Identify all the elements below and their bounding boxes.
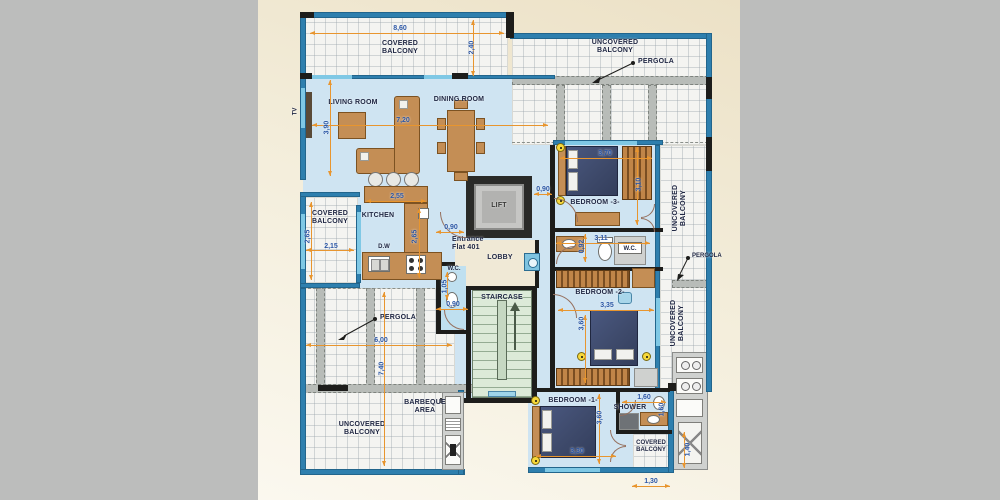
wall (300, 469, 465, 475)
dim-6-00: 6,00 (366, 337, 396, 344)
window (301, 88, 305, 128)
wall (300, 288, 306, 475)
pergola-beam (648, 85, 657, 145)
bed-headboard (532, 406, 540, 458)
balcony-edge-dashed (303, 288, 455, 289)
wall (300, 12, 512, 18)
bed-headboard (558, 146, 566, 196)
bar-stool (386, 172, 401, 187)
kitchen-sink-basin (371, 259, 380, 271)
dining-chair (437, 142, 446, 154)
wall (300, 283, 360, 288)
dim-3-11: 3,11 (586, 235, 616, 242)
wall (300, 192, 360, 197)
bedroom1-label: BEDROOM -1- (548, 397, 598, 405)
window (656, 298, 660, 346)
dim-3-10: 3,10 (636, 173, 643, 197)
bedroom2-label: BEDROOM -2- (575, 289, 625, 297)
lift-label: LIFT (479, 202, 519, 210)
staircase-landing (488, 391, 516, 397)
dim-1-60-shower-h: 1,60 (630, 394, 658, 401)
barbeque-grill (445, 418, 461, 431)
tv-label: TV (293, 103, 300, 119)
stove-burner (409, 266, 414, 271)
dresser-bedroom3 (575, 212, 620, 226)
window (312, 75, 352, 79)
bed-pillow (542, 433, 552, 452)
toilet (598, 242, 612, 261)
pergola-beam (316, 288, 325, 388)
wall-black (550, 228, 555, 270)
dim-1-05: 1,05 (442, 275, 449, 299)
burner (681, 382, 690, 391)
window (545, 468, 600, 472)
dim-line (632, 486, 670, 487)
bedroom3-label: BEDROOM -3- (570, 199, 620, 207)
sofa-pillow (399, 100, 408, 109)
dim-line (419, 208, 420, 278)
wall-black (300, 12, 314, 18)
dim-line (436, 232, 464, 233)
pergola-right-label: PERGOLA (692, 253, 736, 260)
dim-3-30: 3,30 (562, 448, 592, 455)
burner (692, 361, 701, 370)
dim-1-30: 1,30 (636, 478, 666, 485)
dim-line (536, 456, 616, 457)
dim-line (558, 310, 654, 311)
nightstand-lamp (531, 396, 540, 405)
dim-1-60-shower-v: 1,60 (659, 398, 666, 422)
wall-black (452, 73, 468, 79)
entrance-label: Entrance Flat 401 (452, 236, 492, 252)
dim-7-40: 7,40 (379, 357, 386, 381)
pergola-top-arrow (590, 60, 636, 86)
barbeque-label: BARBEQUE AREA (398, 399, 452, 415)
dim-2-65-balcony: 2,65 (305, 225, 312, 249)
dim-line (556, 243, 650, 244)
dim-line (436, 309, 468, 310)
window (424, 75, 454, 79)
dim-line (366, 201, 426, 202)
dim-line (310, 33, 504, 34)
wall-black (528, 388, 670, 392)
staircase-up-arrow-head (510, 302, 520, 311)
pergola-right-arrow (674, 256, 690, 282)
sofa-pillow (360, 152, 369, 161)
covered-balcony-bottomright-label: COVERED BALCONY (628, 440, 674, 454)
dining-chair (476, 142, 485, 154)
dim-line (312, 125, 548, 126)
dining-chair (437, 118, 446, 130)
dim-3-35: 3,35 (592, 302, 622, 309)
wall-black (318, 385, 348, 391)
dim-3-90: 3,90 (324, 116, 331, 140)
dim-1-40: 1,40 (685, 438, 692, 462)
barbeque-cabinet-handle (450, 444, 456, 456)
cabinet-bedroom2 (632, 268, 655, 288)
burner (692, 382, 701, 391)
dim-2-40: 2,40 (469, 36, 476, 60)
wall-black (436, 330, 470, 334)
dim-3-60-bed2: 3,60 (579, 312, 586, 336)
burner (681, 361, 690, 370)
floor-plan-canvas: LIFT Entrance Flat 401 LOBBY STAIRCASE W… (0, 0, 1000, 500)
bed-pillow (616, 349, 634, 360)
uncovered-balcony-right-upper-label: UNCOVERED BALCONY (672, 178, 688, 238)
dim-8-60: 8,60 (382, 25, 418, 32)
tv-unit (306, 92, 312, 138)
kitchen-label: KITCHEN (352, 212, 404, 220)
pergola-top-label: PERGOLA (638, 58, 684, 66)
dining-room-label: DINING ROOM (424, 96, 494, 104)
uncovered-balcony-top-label: UNCOVERED BALCONY (583, 39, 647, 55)
uncovered-balcony-right-lower-label: UNCOVERED BALCONY (670, 293, 686, 353)
wall-black (706, 77, 712, 99)
dining-table (447, 110, 475, 172)
dishwasher-label: D.W (372, 244, 396, 251)
dining-chair (476, 118, 485, 130)
living-room-label: LIVING ROOM (318, 99, 388, 107)
dining-chair (454, 172, 468, 181)
dim-0-92: 0,92 (579, 235, 586, 259)
dim-line (534, 194, 552, 195)
bed-pillow (594, 349, 612, 360)
dim-0-90-wc: 0,90 (440, 301, 466, 308)
wall-black (300, 73, 312, 79)
bar-stool (368, 172, 383, 187)
bar-stool (404, 172, 419, 187)
dim-2-65-kitchen: 2,65 (412, 225, 419, 249)
dim-0-90-lift: 0,90 (530, 186, 556, 193)
pergola-beam (416, 288, 425, 388)
dim-line (560, 158, 652, 159)
wall-black (550, 267, 555, 392)
service-appliance (676, 399, 703, 417)
dim-2-15: 2,15 (316, 243, 346, 250)
wall-black (506, 12, 514, 38)
bed-pillow (542, 410, 552, 429)
dim-0-90-entry: 0,90 (438, 224, 464, 231)
dim-7-20: 7,20 (388, 117, 418, 124)
wardrobe-bedroom2-top (556, 270, 630, 288)
window (565, 141, 637, 145)
dim-3-70: 3,70 (590, 150, 620, 157)
stove-burner (409, 258, 414, 263)
lobby-label: LOBBY (478, 254, 522, 262)
covered-balcony-top-label: COVERED BALCONY (370, 40, 430, 56)
nightstand-lamp (642, 352, 651, 361)
wardrobe-bedroom2-bottom (556, 368, 630, 386)
wall-black (706, 137, 712, 171)
bed-pillow (568, 172, 578, 191)
pergola-beam (602, 85, 611, 145)
kitchen-sink-basin (380, 259, 389, 271)
pergola-beam (556, 85, 565, 145)
dim-line (306, 250, 354, 251)
washing-machine-door (528, 258, 538, 268)
dim-2-55: 2,55 (382, 193, 412, 200)
staircase-up-arrow-stem (514, 310, 516, 350)
staircase-label: STAIRCASE (472, 294, 532, 302)
shower-corner (634, 368, 658, 387)
pergola-left-label: PERGOLA (380, 314, 426, 322)
dim-line (306, 345, 452, 346)
nightstand-lamp (556, 143, 565, 152)
bed-pillow (568, 150, 578, 169)
dim-3-60-bed1: 3,60 (597, 406, 604, 430)
staircase-stringer (497, 300, 507, 380)
